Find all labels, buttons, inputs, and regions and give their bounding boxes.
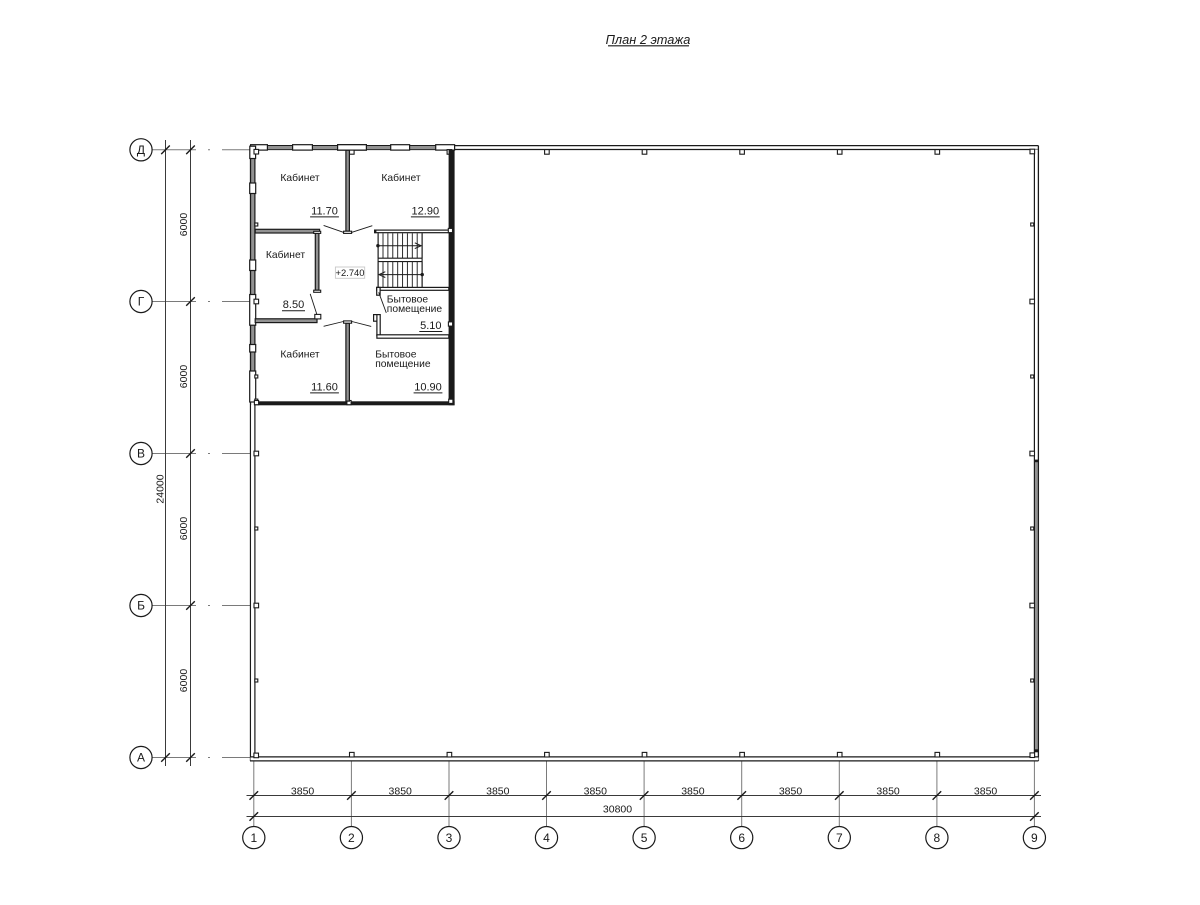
svg-text:3850: 3850 — [584, 785, 608, 797]
svg-text:5.10: 5.10 — [420, 320, 441, 332]
svg-text:9: 9 — [1031, 831, 1038, 845]
svg-text:Кабинет: Кабинет — [381, 172, 420, 184]
svg-text:3850: 3850 — [486, 785, 510, 797]
svg-text:4: 4 — [543, 831, 550, 845]
svg-text:8: 8 — [934, 831, 941, 845]
svg-text:3850: 3850 — [876, 785, 900, 797]
svg-text:Кабинет: Кабинет — [280, 349, 319, 361]
svg-text:6: 6 — [738, 831, 745, 845]
svg-text:8.50: 8.50 — [283, 299, 304, 311]
svg-text:3: 3 — [446, 831, 453, 845]
svg-text:6000: 6000 — [178, 669, 190, 693]
svg-text:6000: 6000 — [178, 517, 190, 541]
svg-text:Г: Г — [138, 295, 145, 309]
svg-text:+2.740: +2.740 — [336, 267, 365, 278]
svg-text:6000: 6000 — [178, 213, 190, 237]
svg-text:6000: 6000 — [178, 365, 190, 389]
svg-text:План 2 этажа: План 2 этажа — [606, 32, 691, 47]
svg-text:помещение: помещение — [375, 359, 431, 370]
svg-text:3850: 3850 — [389, 785, 413, 797]
svg-text:Д: Д — [137, 143, 145, 157]
svg-text:30800: 30800 — [603, 804, 632, 816]
svg-text:7: 7 — [836, 831, 843, 845]
svg-text:В: В — [137, 447, 145, 461]
svg-text:5: 5 — [641, 831, 648, 845]
svg-text:11.70: 11.70 — [311, 205, 338, 217]
svg-text:помещение: помещение — [387, 304, 443, 315]
svg-text:24000: 24000 — [155, 474, 167, 503]
svg-text:3850: 3850 — [291, 785, 315, 797]
svg-text:3850: 3850 — [974, 785, 998, 797]
svg-text:1: 1 — [250, 831, 257, 845]
svg-text:3850: 3850 — [779, 785, 803, 797]
svg-text:10.90: 10.90 — [414, 381, 442, 393]
svg-text:12.90: 12.90 — [412, 205, 440, 217]
svg-text:А: А — [137, 751, 145, 765]
svg-text:2: 2 — [348, 831, 355, 845]
svg-text:Кабинет: Кабинет — [280, 172, 319, 184]
svg-text:11.60: 11.60 — [311, 381, 338, 393]
svg-text:Кабинет: Кабинет — [266, 249, 305, 261]
svg-text:3850: 3850 — [681, 785, 705, 797]
svg-text:Б: Б — [137, 599, 145, 613]
